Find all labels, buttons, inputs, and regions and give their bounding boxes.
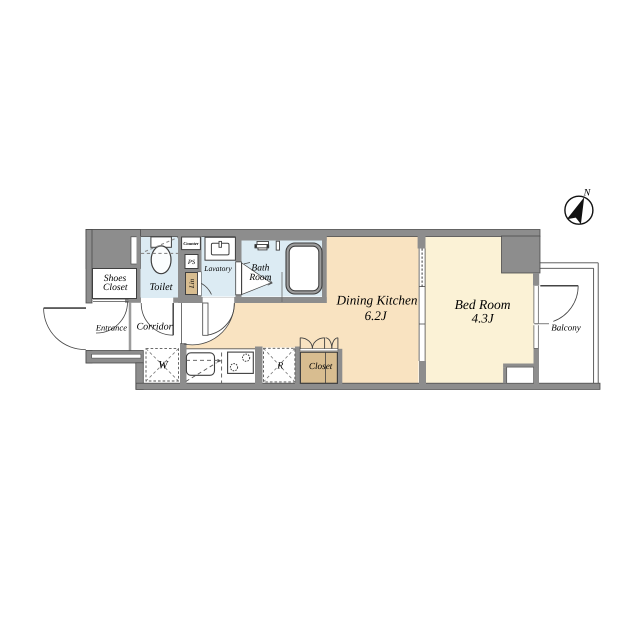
svg-text:4.3J: 4.3J [472, 310, 495, 325]
svg-text:Entrance: Entrance [95, 322, 127, 332]
svg-text:Corridor: Corridor [136, 322, 172, 333]
svg-text:PS: PS [187, 259, 196, 266]
svg-text:Bath: Bath [251, 263, 269, 273]
svg-text:Closet: Closet [309, 361, 333, 371]
svg-text:6.2J: 6.2J [365, 308, 388, 323]
svg-text:Closet: Closet [103, 282, 128, 293]
svg-text:Counter: Counter [183, 241, 199, 246]
svg-text:Balcony: Balcony [551, 323, 581, 333]
svg-text:N: N [583, 188, 592, 199]
svg-text:Lin: Lin [188, 278, 196, 289]
svg-text:R: R [276, 361, 283, 371]
svg-text:Room: Room [248, 273, 271, 283]
svg-text:Dining Kitchen: Dining Kitchen [336, 293, 418, 308]
svg-text:W: W [158, 360, 169, 372]
svg-text:Toilet: Toilet [149, 282, 173, 293]
svg-text:Lavatory: Lavatory [203, 264, 232, 273]
